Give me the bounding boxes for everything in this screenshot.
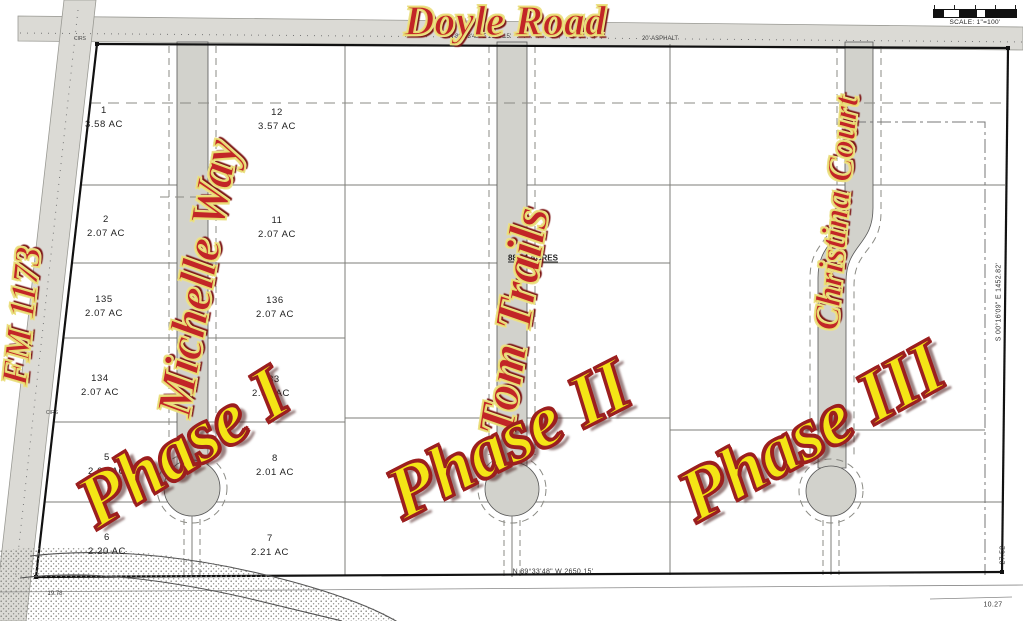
- dim-10-27: 10.27: [983, 602, 1002, 609]
- asphalt-note-label: 20' ASPHALT: [642, 36, 678, 42]
- creek-area: [0, 548, 398, 621]
- lot-label: 123.57 AC: [258, 106, 296, 134]
- south-bearing-label: N 89°33'48" W 2650.15': [513, 569, 594, 576]
- scale-label: SCALE: 1"=100': [933, 19, 1017, 26]
- lot-label: 72.21 AC: [251, 532, 289, 560]
- scale-bar: [933, 9, 1017, 18]
- doyle-road-label: Doyle Road: [404, 0, 606, 46]
- dim-extension-line: [930, 597, 1012, 599]
- scale-indicator: SCALE: 1"=100': [933, 5, 1017, 26]
- lot-label: 1342.07 AC: [81, 372, 119, 400]
- dim-27-52: 27.52: [1000, 545, 1007, 564]
- lot-label: 1352.07 AC: [85, 293, 123, 321]
- lot-label: 22.07 AC: [87, 213, 125, 241]
- lot-label: 13.58 AC: [85, 104, 123, 132]
- east-bearing-label: S 00°16'09" E 1452.82': [996, 263, 1003, 341]
- lot-label: 112.07 AC: [258, 214, 296, 242]
- plat-map: 13.58 AC123.57 AC22.07 AC112.07 AC1352.0…: [0, 0, 1023, 621]
- cirs-marker-left: CIRS: [46, 410, 58, 416]
- dim-19-78: 19.78: [47, 591, 62, 597]
- lot-label: 82.01 AC: [256, 452, 294, 480]
- cirs-marker-top: CIRS: [74, 36, 86, 42]
- lot-label: 1362.07 AC: [256, 294, 294, 322]
